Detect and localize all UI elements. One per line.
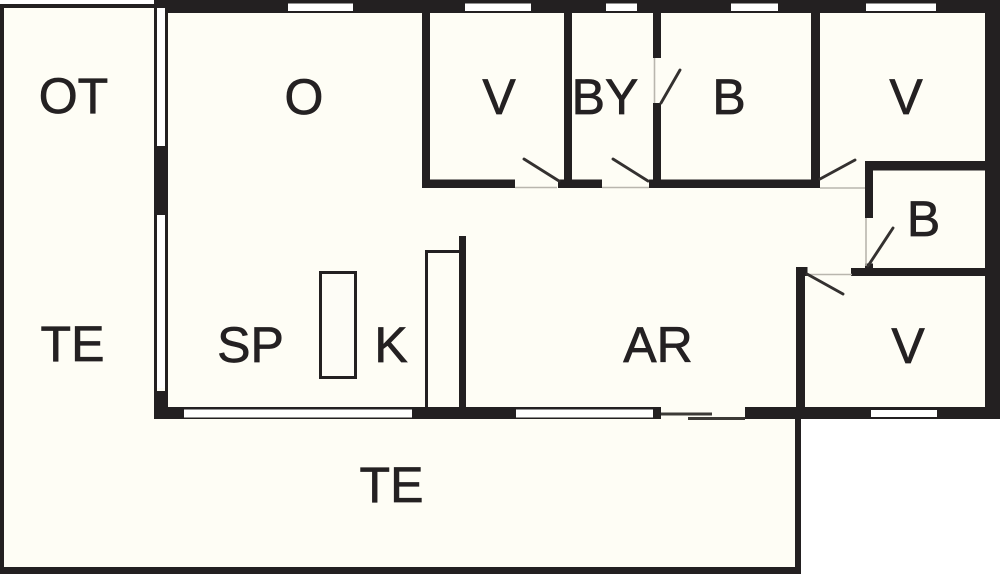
- svg-text:V: V: [891, 318, 925, 374]
- svg-text:V: V: [889, 69, 923, 125]
- svg-text:OT: OT: [39, 68, 108, 124]
- svg-text:BY: BY: [572, 69, 639, 125]
- svg-text:AR: AR: [623, 317, 692, 373]
- svg-text:SP: SP: [217, 317, 284, 373]
- svg-text:B: B: [907, 191, 940, 247]
- svg-text:K: K: [374, 317, 407, 373]
- svg-text:TE: TE: [360, 457, 424, 513]
- svg-text:TE: TE: [41, 316, 105, 372]
- svg-text:B: B: [712, 69, 745, 125]
- svg-text:V: V: [482, 69, 516, 125]
- svg-text:O: O: [285, 69, 324, 125]
